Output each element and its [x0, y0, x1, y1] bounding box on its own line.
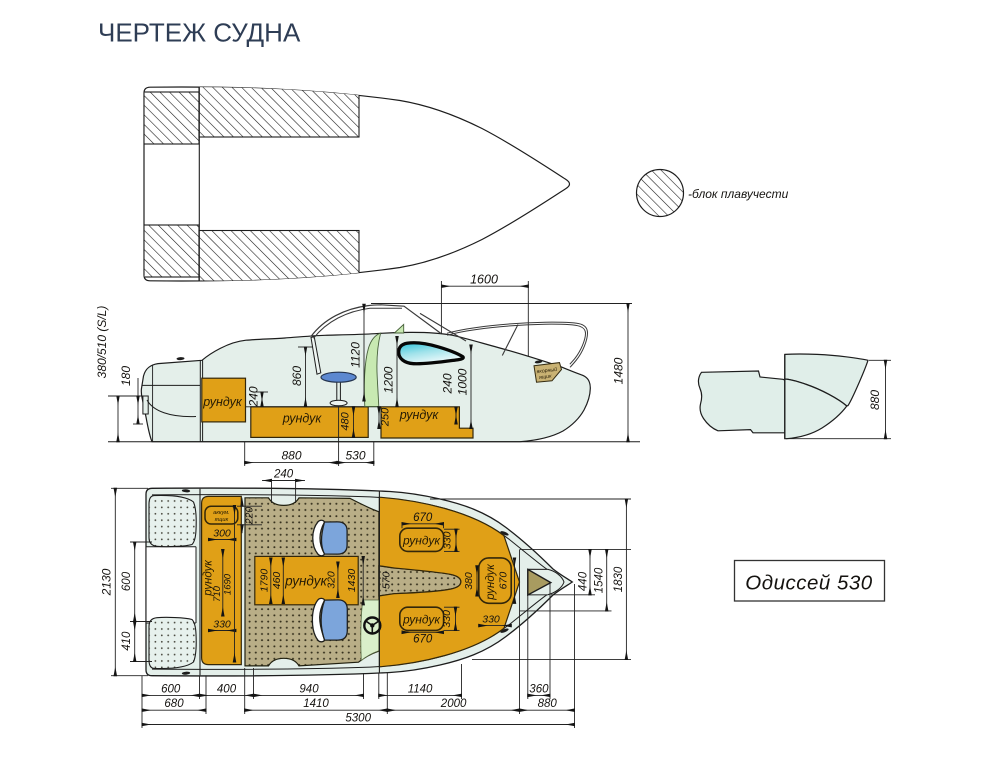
svg-text:320: 320 [326, 571, 338, 589]
svg-text:1120: 1120 [349, 342, 363, 368]
svg-text:ЧЕРТЕЖ СУДНА: ЧЕРТЕЖ СУДНА [98, 18, 301, 48]
svg-text:рундук: рундук [402, 613, 441, 627]
svg-text:480: 480 [340, 411, 352, 430]
svg-text:2130: 2130 [100, 568, 114, 596]
svg-text:1430: 1430 [346, 569, 358, 593]
svg-text:220: 220 [244, 507, 256, 526]
svg-text:2000: 2000 [440, 698, 467, 710]
svg-text:рундук: рундук [202, 395, 243, 409]
svg-text:1200: 1200 [382, 366, 396, 393]
svg-text:880: 880 [868, 390, 882, 410]
svg-text:240: 240 [441, 373, 455, 394]
svg-text:-блок плавучести: -блок плавучести [688, 187, 789, 201]
svg-text:360: 360 [529, 683, 549, 695]
svg-text:940: 940 [299, 683, 319, 695]
svg-text:240: 240 [247, 386, 261, 407]
svg-text:680: 680 [164, 698, 184, 710]
svg-text:рундук: рундук [282, 412, 323, 426]
svg-text:710: 710 [212, 585, 223, 602]
svg-text:670: 670 [413, 512, 433, 524]
svg-text:1690: 1690 [223, 573, 234, 595]
svg-text:330: 330 [442, 531, 454, 549]
svg-text:ящик: ящик [214, 517, 229, 523]
svg-text:5300: 5300 [345, 712, 371, 724]
svg-text:330: 330 [213, 619, 231, 631]
svg-text:рундук: рундук [485, 564, 497, 601]
svg-text:380: 380 [463, 572, 475, 590]
svg-text:1410: 1410 [303, 698, 329, 710]
svg-text:аккум.: аккум. [213, 510, 230, 516]
svg-text:380/510 (S/L): 380/510 (S/L) [95, 306, 109, 379]
svg-text:Одиссей 530: Одиссей 530 [745, 572, 872, 595]
svg-text:880: 880 [538, 698, 558, 710]
svg-text:600: 600 [121, 571, 133, 591]
svg-text:440: 440 [578, 571, 590, 591]
svg-text:670: 670 [413, 633, 433, 645]
svg-text:410: 410 [121, 631, 133, 651]
svg-text:570: 570 [381, 571, 393, 589]
svg-text:1540: 1540 [594, 567, 606, 593]
svg-text:1140: 1140 [408, 683, 433, 695]
svg-text:1000: 1000 [456, 368, 470, 395]
svg-text:330: 330 [482, 614, 500, 626]
svg-text:рундук: рундук [284, 574, 327, 589]
svg-text:1830: 1830 [613, 566, 625, 592]
svg-text:670: 670 [498, 572, 510, 590]
svg-text:400: 400 [217, 683, 237, 695]
svg-text:860: 860 [290, 366, 304, 386]
svg-text:рундук: рундук [399, 408, 440, 422]
svg-text:1480: 1480 [612, 357, 626, 384]
svg-text:1600: 1600 [470, 273, 498, 287]
svg-text:530: 530 [345, 448, 365, 462]
svg-text:330: 330 [441, 610, 453, 628]
svg-text:240: 240 [273, 469, 294, 481]
svg-text:600: 600 [161, 683, 181, 695]
svg-text:880: 880 [281, 448, 301, 462]
svg-text:460: 460 [271, 572, 283, 590]
svg-text:300: 300 [213, 528, 231, 540]
svg-text:250: 250 [380, 407, 392, 427]
svg-text:1790: 1790 [259, 569, 271, 593]
svg-text:рундук: рундук [402, 534, 441, 548]
svg-text:180: 180 [119, 366, 133, 386]
